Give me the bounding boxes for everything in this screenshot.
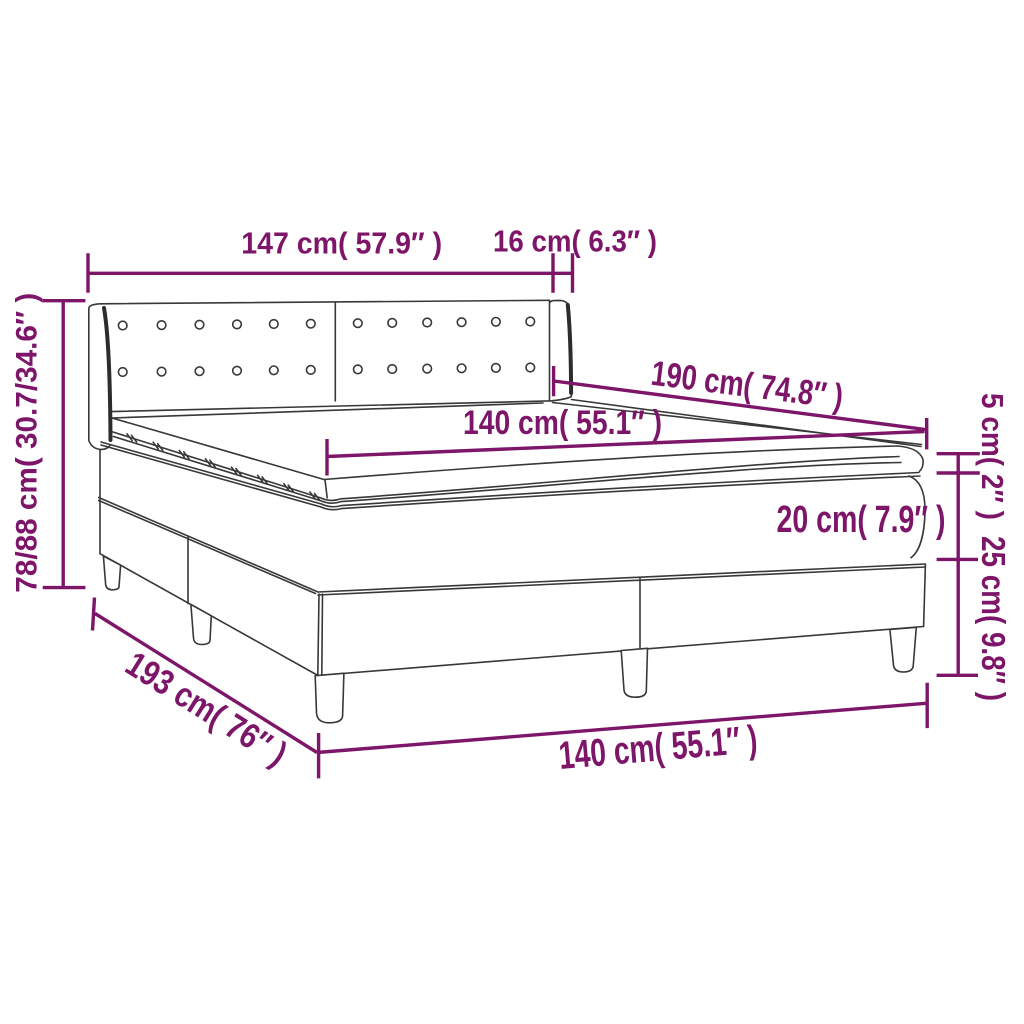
svg-text:147 cm( 57.9″ ): 147 cm( 57.9″ ) bbox=[241, 226, 442, 261]
svg-text:16 cm( 6.3″ ): 16 cm( 6.3″ ) bbox=[493, 224, 657, 259]
svg-text:5 cm( 2″ ): 5 cm( 2″ ) bbox=[975, 393, 1010, 520]
svg-text:20 cm( 7.9″ ): 20 cm( 7.9″ ) bbox=[777, 499, 946, 541]
svg-text:78/88 cm( 30.7/34.6″ ): 78/88 cm( 30.7/34.6″ ) bbox=[11, 293, 44, 593]
svg-text:25 cm( 9.8″ ): 25 cm( 9.8″ ) bbox=[975, 536, 1012, 701]
svg-text:140 cm( 55.1″ ): 140 cm( 55.1″ ) bbox=[463, 404, 662, 442]
